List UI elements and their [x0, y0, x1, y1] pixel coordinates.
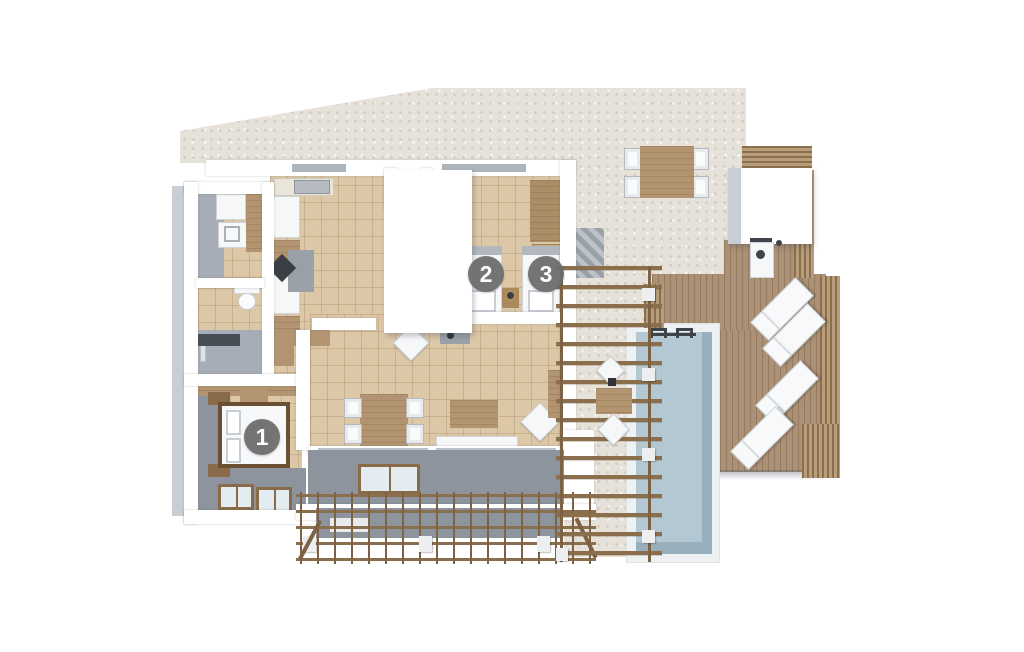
front-pergola-posts: [300, 492, 596, 564]
patio-dining-table: [640, 146, 694, 198]
single-bed-2-pillow: [470, 290, 496, 312]
floor-plan: 1 2 3: [0, 0, 1024, 652]
outdoor-shower-pipe: [750, 238, 772, 242]
slat-steps-corner: [802, 424, 840, 478]
marker-2-label: 2: [480, 261, 493, 288]
slat-fence-right: [820, 276, 840, 424]
roof-right-edge: [728, 168, 741, 244]
outdoor-shower-tray: [750, 242, 774, 278]
side-pergola-post-4: [642, 530, 655, 543]
coffee-table: [450, 400, 498, 428]
storage-cabinet: [216, 194, 246, 220]
side-pergola-beams: [556, 266, 662, 562]
side-pergola-post-5: [556, 548, 568, 561]
wall-left-wing-bottom: [184, 510, 314, 524]
roof-patch: [384, 170, 472, 333]
washing-machine-door: [224, 226, 240, 242]
patio-chair-3: [692, 148, 709, 170]
dining-chair-1: [344, 398, 362, 418]
marker-1-label: 1: [256, 424, 269, 451]
lamp-bedroom23: [507, 292, 514, 299]
kitchen-sink: [294, 180, 330, 194]
single-bed-3-pillow: [528, 290, 554, 312]
front-pergola-post-2: [419, 536, 432, 552]
single-bed-3-headboard: [522, 246, 560, 255]
toilet-bowl: [238, 293, 256, 310]
patio-chair-4: [692, 176, 709, 198]
patio-chair-1: [624, 148, 641, 170]
terrace-skylight: [358, 464, 420, 494]
marker-3-label: 3: [540, 261, 553, 288]
kitchen-cabinet-1: [270, 196, 300, 238]
side-pergola-post-2: [642, 368, 655, 381]
wall-laundry-bathroom: [196, 278, 264, 288]
wall-bedroom23-living: [468, 312, 562, 324]
bistro-table: [596, 388, 632, 414]
outdoor-shower-hook: [776, 240, 782, 246]
dining-chair-2: [344, 424, 362, 444]
bistro-table-item: [608, 378, 616, 386]
front-pergola-post-3: [537, 536, 550, 552]
dining-chair-4: [406, 398, 424, 418]
wall-hall-living: [296, 330, 310, 450]
double-bed-pillow-2: [226, 438, 241, 463]
bedroom1-window-1: [218, 484, 254, 510]
wall-bedroom1-top: [184, 374, 302, 386]
wardrobe-bedroom23: [530, 180, 562, 242]
patio-chair-2: [624, 176, 641, 198]
side-pergola-rail-left: [560, 266, 563, 562]
marker-2-badge: 2: [468, 256, 504, 292]
kitchen-window: [292, 164, 346, 172]
exterior-wall-face: [172, 186, 184, 516]
dining-chair-5: [406, 424, 424, 444]
wall-living-kitchen-stub: [312, 318, 376, 330]
shower-fixture: [198, 334, 240, 346]
double-bed-pillow-1: [226, 410, 241, 435]
outdoor-shower-head: [756, 250, 765, 259]
side-pergola-post-3: [642, 448, 655, 461]
desk-object: [447, 332, 454, 339]
side-pergola-rail-right: [648, 266, 651, 562]
wall-left-outer: [184, 182, 198, 524]
marker-3-badge: 3: [528, 256, 564, 292]
side-pergola-post-1: [642, 288, 655, 301]
marker-1-badge: 1: [244, 419, 280, 455]
